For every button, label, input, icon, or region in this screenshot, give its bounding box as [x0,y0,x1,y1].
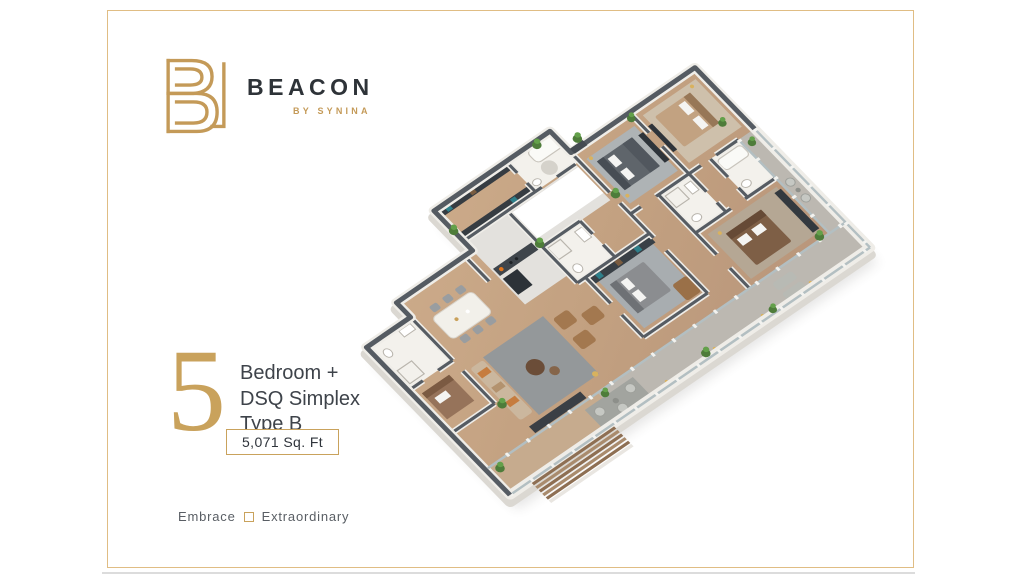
beacon-monogram-icon [158,52,234,140]
tagline: Embrace Extraordinary [178,509,349,524]
brochure-page: BEACON BY SYNINA 5 Bedroom + DSQ Simplex… [0,0,1024,576]
page-edge-line [102,572,915,574]
floorplan-render [0,0,1024,576]
tagline-left: Embrace [178,509,236,524]
unit-line-2: DSQ Simplex [240,387,360,413]
brand-square-icon [244,512,254,522]
brand-name: BEACON [247,74,374,101]
brand-logo: BEACON BY SYNINA [158,52,374,140]
unit-number: 5 [167,340,226,442]
tagline-right: Extraordinary [262,509,350,524]
brand-subtitle: BY SYNINA [247,106,374,116]
area-badge: 5,071 Sq. Ft [226,429,339,455]
unit-line-1: Bedroom + [240,361,360,387]
unit-description: Bedroom + DSQ Simplex Type B [240,361,360,438]
